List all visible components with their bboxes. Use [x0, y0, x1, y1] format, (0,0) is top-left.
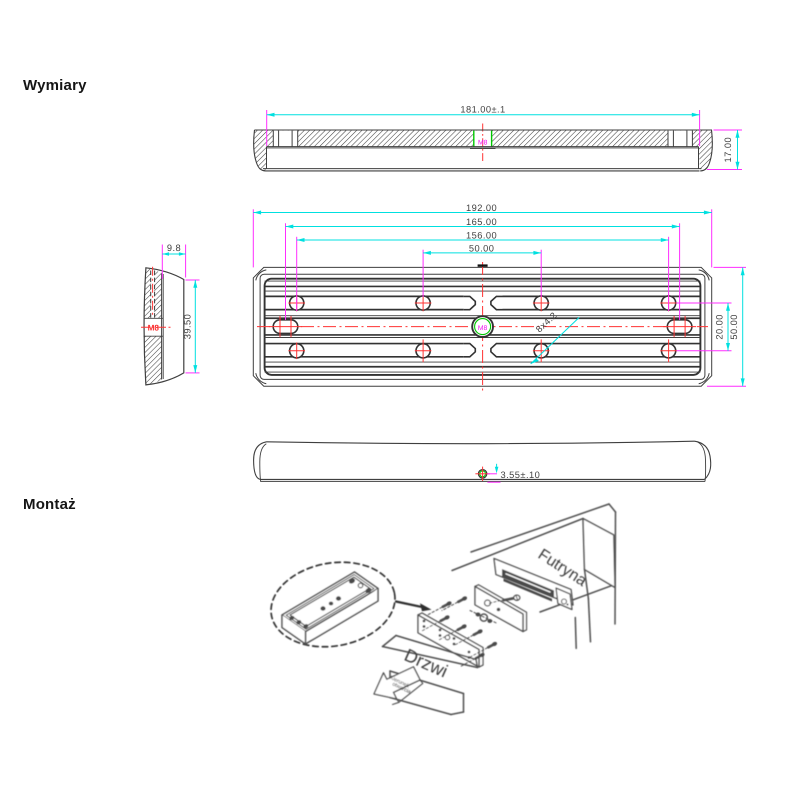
svg-text:17.00: 17.00	[723, 137, 733, 163]
svg-text:192.00: 192.00	[466, 203, 497, 213]
svg-text:39.50: 39.50	[182, 314, 192, 340]
svg-text:M8: M8	[478, 139, 488, 146]
svg-text:20.00: 20.00	[715, 314, 725, 340]
svg-text:50.00: 50.00	[729, 314, 739, 340]
svg-text:50.00: 50.00	[469, 243, 495, 253]
svg-text:M8: M8	[148, 324, 160, 333]
svg-text:181.00±.1: 181.00±.1	[460, 105, 505, 115]
svg-text:3.55±.10: 3.55±.10	[501, 470, 541, 480]
svg-text:M8: M8	[478, 325, 488, 332]
svg-text:165.00: 165.00	[466, 217, 497, 227]
svg-text:9.8: 9.8	[167, 243, 181, 253]
svg-text:156.00: 156.00	[466, 230, 497, 240]
